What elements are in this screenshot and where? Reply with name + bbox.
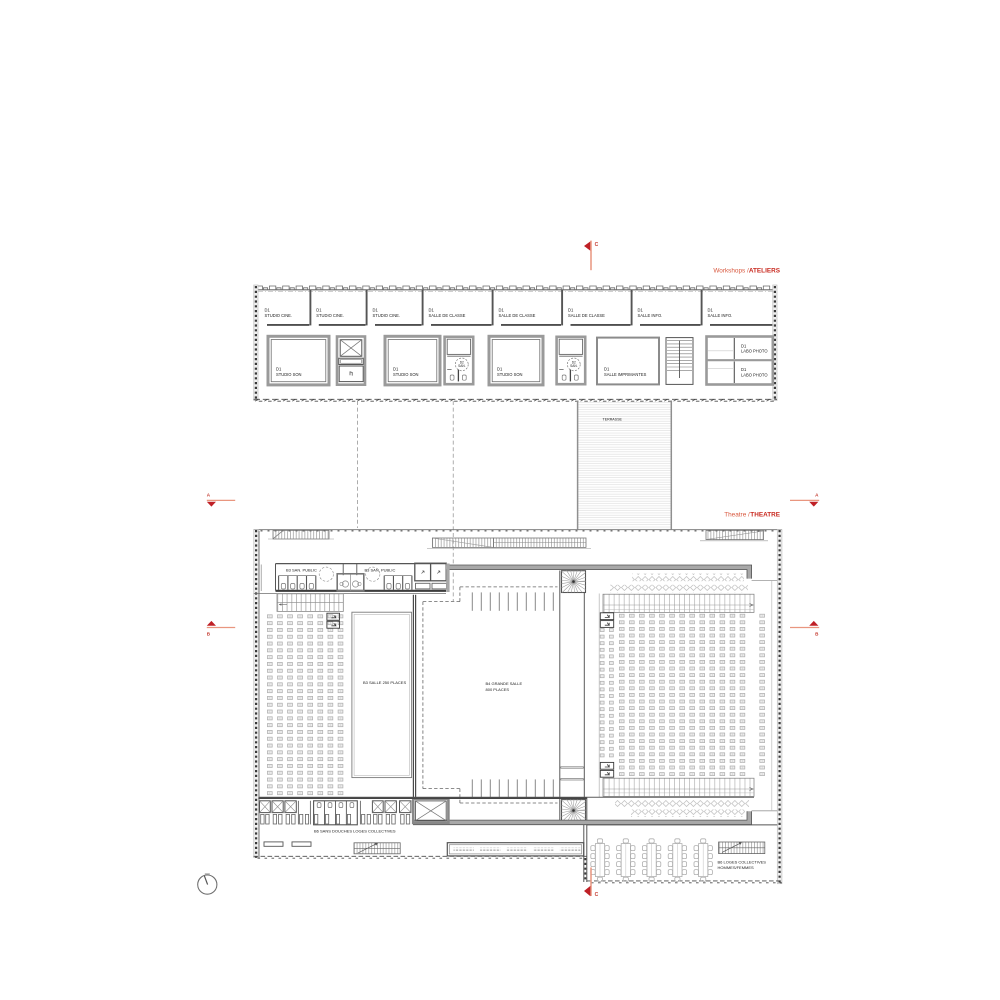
svg-text:LABO PHOTO: LABO PHOTO: [741, 349, 768, 354]
svg-text:B3 SAN. PUBLIC: B3 SAN. PUBLIC: [286, 567, 317, 572]
svg-text:SALLE INFO.: SALLE INFO.: [708, 313, 733, 318]
svg-text:D1: D1: [499, 308, 505, 313]
svg-text:B6 LOGES COLLECTIVES: B6 LOGES COLLECTIVES: [718, 859, 767, 864]
svg-text:B6 SANS DOUCHES LOGES COLLECTI: B6 SANS DOUCHES LOGES COLLECTIVES: [314, 828, 396, 833]
svg-text:SALLE INFO.: SALLE INFO.: [638, 313, 663, 318]
svg-text:D1: D1: [604, 367, 610, 372]
svg-text:STUDIO SON: STUDIO SON: [497, 372, 523, 377]
svg-text:D1: D1: [741, 367, 747, 372]
svg-text:800 PLACES: 800 PLACES: [486, 687, 510, 692]
svg-text:D1: D1: [316, 308, 322, 313]
svg-text:THEATRE: THEATRE: [750, 511, 780, 518]
svg-text:D1: D1: [708, 308, 714, 313]
svg-text:STUDIO SON: STUDIO SON: [276, 372, 302, 377]
svg-text:SALLE DE CLASSE: SALLE DE CLASSE: [568, 313, 605, 318]
svg-text:D1: D1: [429, 308, 435, 313]
svg-text:LABO PHOTO: LABO PHOTO: [741, 373, 768, 378]
svg-text:STUDIO CINE.: STUDIO CINE.: [265, 313, 293, 318]
svg-text:STUDIO CINE.: STUDIO CINE.: [373, 313, 401, 318]
svg-text:Workshops /: Workshops /: [713, 267, 749, 274]
svg-text:SALLE IMPRIMANTES: SALLE IMPRIMANTES: [604, 372, 647, 377]
svg-text:STUDIO CINE.: STUDIO CINE.: [316, 313, 344, 318]
svg-text:D1: D1: [265, 308, 271, 313]
svg-text:SAN.: SAN.: [458, 364, 466, 368]
svg-text:D1: D1: [568, 308, 574, 313]
svg-text:Theatre /: Theatre /: [724, 511, 750, 518]
svg-text:TERRASSE: TERRASSE: [603, 418, 623, 422]
svg-text:B4 GRANDE SALLE: B4 GRANDE SALLE: [486, 681, 523, 686]
svg-text:D1: D1: [276, 367, 282, 372]
svg-text:SAN.: SAN.: [570, 364, 578, 368]
svg-text:D1: D1: [638, 308, 644, 313]
svg-text:D1: D1: [373, 308, 379, 313]
svg-text:STUDIO SON: STUDIO SON: [393, 372, 419, 377]
svg-text:SALLE DE CLASSE: SALLE DE CLASSE: [429, 313, 466, 318]
svg-text:D1: D1: [497, 367, 503, 372]
svg-text:SALLE DE CLASSE: SALLE DE CLASSE: [499, 313, 536, 318]
svg-text:C: C: [595, 242, 599, 248]
svg-text:ATELIERS: ATELIERS: [749, 267, 781, 274]
svg-text:HOMMES/FEMMES: HOMMES/FEMMES: [718, 865, 755, 870]
svg-text:C: C: [595, 892, 599, 898]
svg-text:D1: D1: [393, 367, 399, 372]
svg-text:D1: D1: [741, 343, 747, 348]
svg-text:B3 SALLE 250 PLACES: B3 SALLE 250 PLACES: [363, 680, 406, 685]
